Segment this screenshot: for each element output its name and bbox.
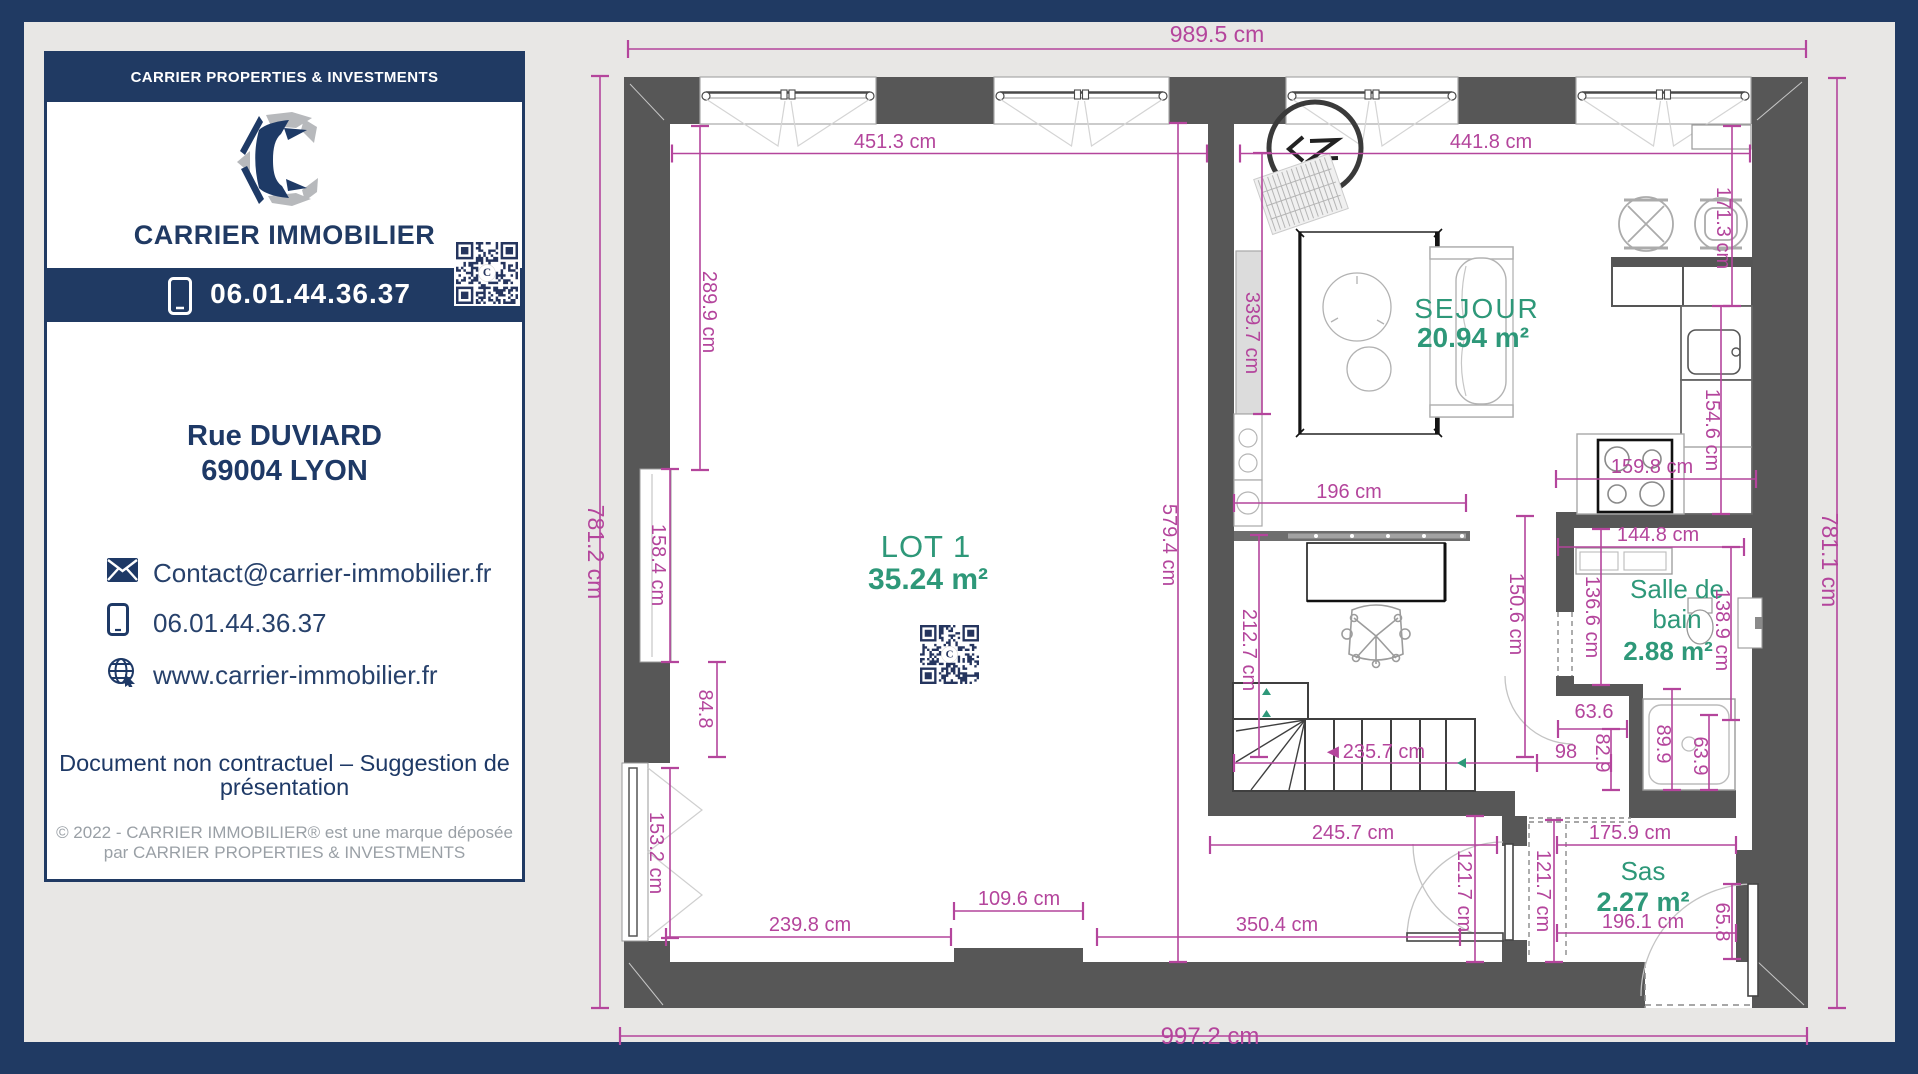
svg-text:989.5 cm: 989.5 cm xyxy=(1170,21,1265,47)
svg-text:289.9 cm: 289.9 cm xyxy=(698,271,720,353)
svg-text:138.9 cm: 138.9 cm xyxy=(1711,589,1733,671)
svg-text:63.6: 63.6 xyxy=(1575,701,1614,723)
svg-text:997.2 cm: 997.2 cm xyxy=(1161,1023,1260,1050)
svg-text:781.2 cm: 781.2 cm xyxy=(583,505,609,600)
svg-text:196.1 cm: 196.1 cm xyxy=(1602,911,1684,933)
svg-text:339.7 cm: 339.7 cm xyxy=(1241,292,1263,374)
svg-text:Sas: Sas xyxy=(1621,856,1666,886)
svg-text:84.8: 84.8 xyxy=(694,690,716,729)
svg-text:441.8 cm: 441.8 cm xyxy=(1450,131,1532,153)
svg-text:153.2 cm: 153.2 cm xyxy=(645,812,667,894)
svg-text:781.1 cm: 781.1 cm xyxy=(1817,513,1843,608)
svg-text:144.8 cm: 144.8 cm xyxy=(1617,524,1699,546)
svg-text:121.7 cm: 121.7 cm xyxy=(1453,850,1475,932)
svg-text:136.6 cm: 136.6 cm xyxy=(1581,576,1603,658)
svg-text:98: 98 xyxy=(1555,741,1577,763)
svg-text:20.94 m²: 20.94 m² xyxy=(1417,322,1529,353)
svg-text:212.7 cm: 212.7 cm xyxy=(1238,609,1260,691)
svg-text:109.6 cm: 109.6 cm xyxy=(978,888,1060,910)
svg-text:SEJOUR: SEJOUR xyxy=(1414,293,1540,324)
svg-text:245.7 cm: 245.7 cm xyxy=(1312,822,1394,844)
svg-text:239.8 cm: 239.8 cm xyxy=(769,914,851,936)
svg-text:Salle de: Salle de xyxy=(1630,574,1724,604)
svg-text:150.6 cm: 150.6 cm xyxy=(1505,573,1527,655)
svg-text:89.9: 89.9 xyxy=(1652,725,1674,764)
svg-text:35.24 m²: 35.24 m² xyxy=(868,563,988,596)
svg-text:154.6 cm: 154.6 cm xyxy=(1701,389,1723,471)
svg-text:C: C xyxy=(946,648,954,660)
svg-text:◄235.7 cm: ◄235.7 cm xyxy=(1323,741,1425,763)
svg-text:579.4 cm: 579.4 cm xyxy=(1158,504,1180,586)
svg-text:2.88 m²: 2.88 m² xyxy=(1623,636,1713,666)
svg-text:196 cm: 196 cm xyxy=(1316,481,1382,503)
svg-text:63.9: 63.9 xyxy=(1689,737,1711,776)
svg-text:LOT 1: LOT 1 xyxy=(881,529,972,564)
svg-text:175.9 cm: 175.9 cm xyxy=(1589,822,1671,844)
svg-text:bain: bain xyxy=(1652,604,1701,634)
svg-text:350.4 cm: 350.4 cm xyxy=(1236,914,1318,936)
svg-text:82.9: 82.9 xyxy=(1591,734,1613,773)
svg-text:C: C xyxy=(483,267,491,279)
svg-text:158.4 cm: 158.4 cm xyxy=(647,524,669,606)
svg-text:171.3 cm: 171.3 cm xyxy=(1712,187,1734,269)
svg-text:65.8: 65.8 xyxy=(1711,903,1733,942)
svg-text:451.3 cm: 451.3 cm xyxy=(854,131,936,153)
svg-text:159.8 cm: 159.8 cm xyxy=(1611,456,1693,478)
svg-text:121.7 cm: 121.7 cm xyxy=(1532,850,1554,932)
